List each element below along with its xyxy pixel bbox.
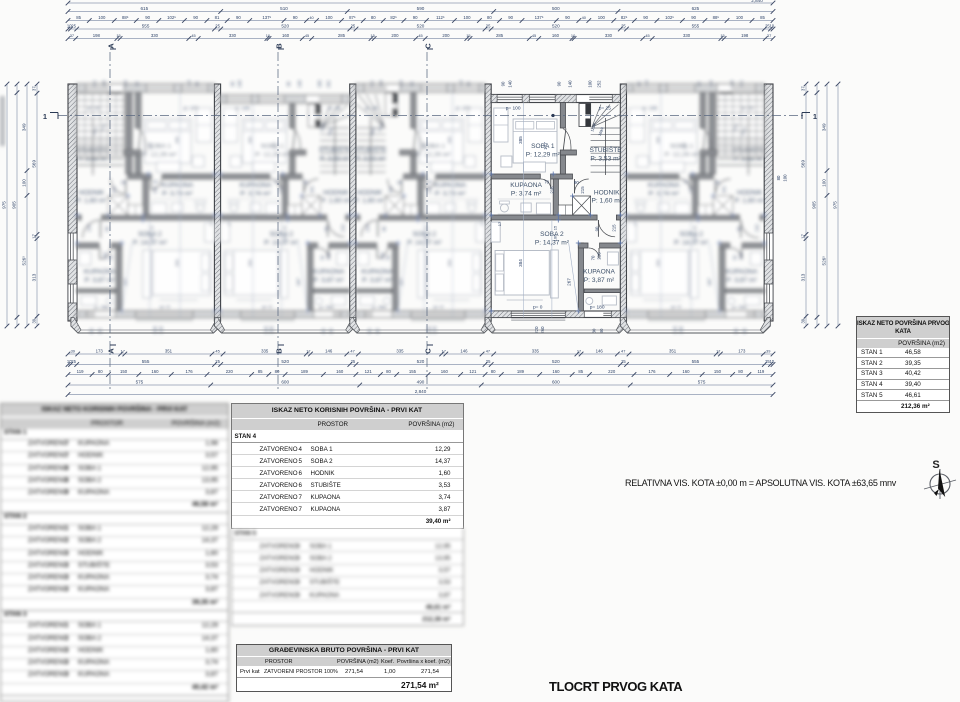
svg-text:349: 349 xyxy=(21,123,26,131)
svg-text:335: 335 xyxy=(532,348,540,353)
svg-text:80: 80 xyxy=(98,369,103,374)
svg-text:220: 220 xyxy=(226,369,234,374)
svg-text:p= 100: p= 100 xyxy=(642,106,657,112)
svg-text:100: 100 xyxy=(102,80,107,88)
svg-text:25: 25 xyxy=(621,23,626,28)
svg-text:STUBIŠTE: STUBIŠTE xyxy=(732,145,765,154)
svg-text:STUBIŠTE: STUBIŠTE xyxy=(319,145,352,154)
svg-text:45: 45 xyxy=(191,33,195,38)
svg-text:P: 12,29 m²: P: 12,29 m² xyxy=(416,152,451,159)
svg-text:85: 85 xyxy=(760,15,765,20)
svg-text:45: 45 xyxy=(532,33,536,38)
svg-text:15: 15 xyxy=(466,33,470,38)
svg-text:90: 90 xyxy=(410,81,415,86)
svg-text:140: 140 xyxy=(508,80,513,88)
svg-text:P: 1,60 m²: P: 1,60 m² xyxy=(321,198,352,205)
svg-text:37: 37 xyxy=(31,86,36,91)
svg-text:351: 351 xyxy=(669,348,677,353)
svg-text:100: 100 xyxy=(21,179,26,187)
svg-text:90: 90 xyxy=(194,81,199,86)
svg-text:p= 180: p= 180 xyxy=(94,305,109,311)
svg-text:215: 215 xyxy=(755,224,760,232)
svg-text:P: 3,87 m²: P: 3,87 m² xyxy=(584,277,615,284)
svg-text:177: 177 xyxy=(543,142,548,150)
svg-text:384: 384 xyxy=(247,259,252,267)
svg-text:80: 80 xyxy=(487,15,492,20)
svg-text:100: 100 xyxy=(98,15,106,20)
svg-text:112⁵: 112⁵ xyxy=(436,15,445,20)
svg-text:HODNIK: HODNIK xyxy=(79,190,105,197)
svg-text:70: 70 xyxy=(427,180,432,185)
svg-text:510: 510 xyxy=(280,6,288,11)
svg-text:15: 15 xyxy=(116,33,120,38)
svg-text:600: 600 xyxy=(281,379,289,384)
svg-text:215: 215 xyxy=(112,186,117,194)
svg-text:575: 575 xyxy=(136,379,144,384)
svg-text:80: 80 xyxy=(776,175,781,180)
svg-text:384: 384 xyxy=(447,259,452,267)
svg-text:216: 216 xyxy=(596,252,601,260)
svg-text:555: 555 xyxy=(692,23,700,28)
svg-text:25: 25 xyxy=(71,359,76,364)
svg-text:100: 100 xyxy=(325,15,333,20)
svg-text:176: 176 xyxy=(186,369,194,374)
svg-text:140: 140 xyxy=(708,80,713,88)
svg-text:90: 90 xyxy=(637,81,642,86)
svg-text:37: 37 xyxy=(800,86,805,91)
svg-text:176: 176 xyxy=(648,369,656,374)
svg-text:100: 100 xyxy=(730,80,735,88)
svg-text:500: 500 xyxy=(552,6,560,11)
svg-text:HODNIK: HODNIK xyxy=(323,190,349,197)
svg-text:p= 25: p= 25 xyxy=(328,106,340,112)
svg-text:10: 10 xyxy=(769,359,774,364)
svg-text:215: 215 xyxy=(87,224,92,232)
svg-text:100: 100 xyxy=(588,80,593,88)
svg-text:267: 267 xyxy=(566,278,571,286)
svg-text:70: 70 xyxy=(109,255,114,260)
svg-text:330: 330 xyxy=(151,33,159,38)
svg-text:100: 100 xyxy=(553,234,558,241)
svg-text:25: 25 xyxy=(621,359,626,364)
svg-text:160: 160 xyxy=(336,369,344,374)
svg-text:137⁵: 137⁵ xyxy=(535,15,544,20)
svg-text:490: 490 xyxy=(417,379,425,384)
svg-text:625: 625 xyxy=(692,6,700,11)
svg-text:17: 17 xyxy=(800,234,805,239)
svg-text:335: 335 xyxy=(261,348,269,353)
svg-text:STUBIŠTE: STUBIŠTE xyxy=(589,145,622,154)
svg-text:70: 70 xyxy=(683,180,688,185)
svg-text:90: 90 xyxy=(397,180,402,185)
svg-text:P: 12,29 m²: P: 12,29 m² xyxy=(255,152,290,159)
svg-text:KUPAONA: KUPAONA xyxy=(583,269,615,276)
svg-text:90: 90 xyxy=(574,180,579,185)
svg-text:90: 90 xyxy=(286,81,291,86)
svg-text:384: 384 xyxy=(655,259,660,267)
svg-text:215: 215 xyxy=(580,186,585,194)
svg-text:39: 39 xyxy=(766,348,770,353)
svg-text:267: 267 xyxy=(399,278,404,286)
svg-text:90: 90 xyxy=(135,81,140,86)
svg-text:90: 90 xyxy=(324,226,329,231)
svg-text:90: 90 xyxy=(193,15,198,20)
svg-text:200: 200 xyxy=(442,33,450,38)
svg-text:P: 1,60 m²: P: 1,60 m² xyxy=(76,198,107,205)
svg-text:1: 1 xyxy=(43,112,47,121)
svg-text:KUPAONA: KUPAONA xyxy=(434,182,466,189)
svg-text:90: 90 xyxy=(557,81,562,86)
svg-text:45: 45 xyxy=(418,33,422,38)
svg-text:100: 100 xyxy=(783,174,788,182)
svg-text:520: 520 xyxy=(552,359,560,364)
svg-text:90: 90 xyxy=(382,226,387,231)
svg-text:p= 25: p= 25 xyxy=(87,106,99,112)
svg-text:85: 85 xyxy=(76,15,81,20)
svg-text:146: 146 xyxy=(460,348,468,353)
svg-text:177: 177 xyxy=(422,142,427,150)
svg-text:P: 12,29 m²: P: 12,29 m² xyxy=(665,152,700,159)
svg-text:173: 173 xyxy=(738,348,746,353)
svg-text:15: 15 xyxy=(553,225,558,230)
svg-text:90: 90 xyxy=(691,15,696,20)
svg-text:177: 177 xyxy=(682,142,687,150)
svg-text:140: 140 xyxy=(297,80,302,88)
svg-text:216: 216 xyxy=(427,186,432,194)
svg-text:17: 17 xyxy=(716,348,720,353)
svg-text:600: 600 xyxy=(552,379,560,384)
svg-text:KUPAONA: KUPAONA xyxy=(84,269,116,276)
svg-text:90: 90 xyxy=(303,180,308,185)
svg-text:520: 520 xyxy=(417,359,425,364)
svg-text:15: 15 xyxy=(370,33,374,38)
svg-text:70: 70 xyxy=(386,255,391,260)
svg-text:87⁵: 87⁵ xyxy=(349,15,356,20)
svg-text:215: 215 xyxy=(388,186,393,194)
svg-text:975: 975 xyxy=(1,201,6,209)
svg-text:45: 45 xyxy=(215,348,219,353)
svg-text:17: 17 xyxy=(306,348,310,353)
svg-text:90: 90 xyxy=(230,81,235,86)
svg-text:p= 0: p= 0 xyxy=(671,305,681,311)
svg-text:160: 160 xyxy=(151,369,159,374)
svg-text:P: 3,74 m²: P: 3,74 m² xyxy=(240,191,271,198)
svg-text:P: 12,29 m²: P: 12,29 m² xyxy=(142,152,177,159)
svg-text:140: 140 xyxy=(237,80,242,88)
svg-text:220: 220 xyxy=(608,369,616,374)
svg-text:216: 216 xyxy=(102,252,107,260)
svg-text:47: 47 xyxy=(350,348,354,353)
svg-text:p= 25: p= 25 xyxy=(599,106,611,112)
svg-text:p= 180: p= 180 xyxy=(732,305,747,311)
svg-text:70: 70 xyxy=(733,255,738,260)
svg-text:520: 520 xyxy=(417,23,425,28)
svg-text:2,840: 2,840 xyxy=(751,0,763,3)
svg-text:385: 385 xyxy=(655,136,660,144)
svg-text:349: 349 xyxy=(821,123,826,131)
svg-text:90: 90 xyxy=(105,226,110,231)
svg-text:39: 39 xyxy=(800,318,805,323)
svg-text:615: 615 xyxy=(140,6,148,11)
svg-text:p= 180: p= 180 xyxy=(590,305,605,311)
svg-text:140: 140 xyxy=(399,80,404,88)
svg-text:47: 47 xyxy=(621,348,625,353)
svg-text:STUBIŠTE: STUBIŠTE xyxy=(77,145,110,154)
svg-text:88⁵: 88⁵ xyxy=(713,15,720,20)
svg-text:102⁵: 102⁵ xyxy=(167,15,176,20)
svg-text:160: 160 xyxy=(441,369,449,374)
svg-text:160: 160 xyxy=(282,33,290,38)
svg-text:100: 100 xyxy=(282,234,287,241)
svg-text:15: 15 xyxy=(149,225,154,230)
svg-text:P: 1,60 m²: P: 1,60 m² xyxy=(734,198,765,205)
svg-text:A: A xyxy=(107,348,116,354)
svg-text:39: 39 xyxy=(71,348,75,353)
svg-text:140: 140 xyxy=(568,80,573,88)
svg-text:100: 100 xyxy=(463,15,471,20)
svg-text:p= 25: p= 25 xyxy=(742,106,754,112)
svg-text:215: 215 xyxy=(341,224,346,232)
svg-text:216: 216 xyxy=(380,252,385,260)
svg-text:B: B xyxy=(275,348,284,354)
svg-text:p= 180: p= 180 xyxy=(319,305,334,311)
svg-text:85: 85 xyxy=(578,369,583,374)
svg-text:25: 25 xyxy=(215,359,220,364)
svg-text:189: 189 xyxy=(301,369,309,374)
svg-text:P: 3,74 m²: P: 3,74 m² xyxy=(435,191,466,198)
svg-text:173: 173 xyxy=(96,348,104,353)
svg-text:330: 330 xyxy=(229,33,237,38)
svg-text:252: 252 xyxy=(739,80,744,88)
svg-text:140: 140 xyxy=(187,80,192,88)
svg-text:100: 100 xyxy=(317,80,322,88)
svg-text:P: 3,87 m²: P: 3,87 m² xyxy=(84,277,115,284)
svg-text:KUPAONA: KUPAONA xyxy=(726,269,758,276)
svg-text:KUPAONA: KUPAONA xyxy=(240,182,272,189)
svg-text:137⁵: 137⁵ xyxy=(262,15,271,20)
svg-text:252: 252 xyxy=(370,80,375,88)
svg-text:90: 90 xyxy=(697,81,702,86)
svg-text:17: 17 xyxy=(31,234,36,239)
svg-text:P: 3,53 m²: P: 3,53 m² xyxy=(77,156,108,163)
svg-text:40: 40 xyxy=(309,15,314,20)
svg-text:P: 1,60 m²: P: 1,60 m² xyxy=(591,198,622,205)
svg-text:215: 215 xyxy=(722,186,727,194)
svg-text:100: 100 xyxy=(692,234,697,241)
svg-text:216: 216 xyxy=(549,186,554,194)
svg-text:252: 252 xyxy=(92,80,97,88)
svg-text:80: 80 xyxy=(275,369,280,374)
svg-text:140: 140 xyxy=(459,80,464,88)
svg-text:140: 140 xyxy=(644,80,649,88)
svg-text:102⁵: 102⁵ xyxy=(665,15,674,20)
svg-text:80: 80 xyxy=(386,369,391,374)
svg-text:P: 1,60 m²: P: 1,60 m² xyxy=(354,198,385,205)
svg-text:526⁵: 526⁵ xyxy=(21,256,26,266)
svg-text:252: 252 xyxy=(597,80,602,88)
svg-text:90: 90 xyxy=(121,180,126,185)
svg-text:216: 216 xyxy=(153,186,158,194)
svg-text:85: 85 xyxy=(258,369,263,374)
svg-text:25: 25 xyxy=(351,359,356,364)
svg-text:267: 267 xyxy=(296,278,301,286)
svg-text:520: 520 xyxy=(281,359,289,364)
svg-text:A: A xyxy=(107,43,116,49)
svg-text:25: 25 xyxy=(351,23,356,28)
svg-text:330: 330 xyxy=(683,33,691,38)
svg-text:215: 215 xyxy=(310,186,315,194)
svg-text:HODNIK: HODNIK xyxy=(737,190,763,197)
svg-text:17: 17 xyxy=(226,221,231,226)
svg-text:17: 17 xyxy=(208,221,213,226)
svg-text:P: 12,29 m²: P: 12,29 m² xyxy=(526,152,561,159)
svg-text:C: C xyxy=(424,348,433,354)
svg-text:100: 100 xyxy=(598,15,606,20)
svg-text:90: 90 xyxy=(565,15,570,20)
svg-text:216: 216 xyxy=(689,186,694,194)
svg-text:KUPAONA: KUPAONA xyxy=(361,269,393,276)
svg-text:119: 119 xyxy=(757,369,764,374)
svg-text:384: 384 xyxy=(175,259,180,267)
svg-text:119: 119 xyxy=(77,369,84,374)
svg-text:KUPAONA: KUPAONA xyxy=(313,269,345,276)
svg-text:520: 520 xyxy=(281,23,289,28)
svg-text:25: 25 xyxy=(71,23,76,28)
svg-text:160: 160 xyxy=(552,33,560,38)
svg-text:HODNIK: HODNIK xyxy=(594,190,620,197)
svg-text:384: 384 xyxy=(518,259,523,267)
svg-text:155: 155 xyxy=(409,369,417,374)
svg-text:17: 17 xyxy=(497,221,502,226)
svg-text:17: 17 xyxy=(633,221,638,226)
svg-text:526⁵: 526⁵ xyxy=(821,256,826,266)
svg-text:25: 25 xyxy=(215,23,220,28)
svg-text:520: 520 xyxy=(552,23,560,28)
svg-text:P: 3,74 m²: P: 3,74 m² xyxy=(648,191,679,198)
svg-text:569: 569 xyxy=(800,160,805,168)
svg-text:905: 905 xyxy=(11,201,16,209)
svg-text:200: 200 xyxy=(391,33,399,38)
svg-text:S: S xyxy=(932,459,939,471)
svg-text:975: 975 xyxy=(832,201,837,209)
svg-text:90: 90 xyxy=(715,180,720,185)
svg-text:HODNIK: HODNIK xyxy=(357,190,383,197)
svg-text:160: 160 xyxy=(682,369,690,374)
svg-text:P: 3,53 m²: P: 3,53 m² xyxy=(320,156,351,163)
svg-text:177: 177 xyxy=(273,142,278,150)
svg-text:146: 146 xyxy=(596,348,604,353)
svg-text:90: 90 xyxy=(595,226,600,231)
svg-text:100: 100 xyxy=(424,234,429,241)
svg-text:216: 216 xyxy=(739,252,744,260)
svg-text:90: 90 xyxy=(236,15,241,20)
svg-text:385: 385 xyxy=(447,136,452,144)
svg-text:267: 267 xyxy=(707,278,712,286)
svg-text:351: 351 xyxy=(165,348,173,353)
svg-text:555: 555 xyxy=(142,359,150,364)
svg-text:555: 555 xyxy=(692,359,700,364)
svg-text:17: 17 xyxy=(121,348,125,353)
svg-text:P: 3,87 m²: P: 3,87 m² xyxy=(362,277,393,284)
svg-text:285: 285 xyxy=(496,33,504,38)
svg-text:KUPAONA: KUPAONA xyxy=(161,182,193,189)
svg-text:90: 90 xyxy=(500,81,505,86)
svg-text:555: 555 xyxy=(142,23,150,28)
svg-text:90: 90 xyxy=(643,15,648,20)
svg-text:189: 189 xyxy=(517,369,525,374)
svg-text:569: 569 xyxy=(31,160,36,168)
svg-text:82⁵: 82⁵ xyxy=(390,15,397,20)
svg-text:216: 216 xyxy=(279,186,284,194)
svg-text:15: 15 xyxy=(692,225,697,230)
svg-text:p= 100: p= 100 xyxy=(184,106,199,112)
svg-text:47: 47 xyxy=(486,348,490,353)
svg-text:313: 313 xyxy=(31,273,36,281)
svg-text:90: 90 xyxy=(145,15,150,20)
svg-text:70: 70 xyxy=(591,255,596,260)
svg-text:100: 100 xyxy=(821,179,826,187)
svg-text:198: 198 xyxy=(93,33,101,38)
svg-text:p= 100: p= 100 xyxy=(235,106,250,112)
svg-text:90: 90 xyxy=(293,15,298,20)
svg-text:121: 121 xyxy=(469,369,477,374)
svg-text:150: 150 xyxy=(714,369,722,374)
svg-text:100: 100 xyxy=(736,15,744,20)
svg-text:198: 198 xyxy=(741,33,749,38)
svg-text:590: 590 xyxy=(417,6,425,11)
svg-text:p= 0: p= 0 xyxy=(160,305,170,311)
svg-text:KUPAONA: KUPAONA xyxy=(510,182,542,189)
svg-text:90: 90 xyxy=(737,226,742,231)
svg-text:1: 1 xyxy=(813,112,817,121)
svg-text:P: 3,74 m²: P: 3,74 m² xyxy=(511,191,542,198)
svg-text:17: 17 xyxy=(442,348,446,353)
svg-text:p= 180: p= 180 xyxy=(372,305,387,311)
svg-text:285: 285 xyxy=(338,33,346,38)
svg-text:p= 100: p= 100 xyxy=(456,106,471,112)
svg-text:100: 100 xyxy=(149,234,154,241)
svg-text:P: 3,87 m²: P: 3,87 m² xyxy=(313,277,344,284)
svg-text:P: 3,53 m²: P: 3,53 m² xyxy=(355,156,386,163)
svg-text:385: 385 xyxy=(247,136,252,144)
svg-text:25: 25 xyxy=(486,359,491,364)
svg-text:82⁵: 82⁵ xyxy=(621,15,628,20)
svg-text:88⁵: 88⁵ xyxy=(122,15,129,20)
svg-text:90: 90 xyxy=(413,15,418,20)
svg-text:p= 0: p= 0 xyxy=(434,305,444,311)
svg-text:25: 25 xyxy=(486,23,491,28)
svg-text:P: 3,87 m²: P: 3,87 m² xyxy=(726,277,757,284)
svg-text:P: 3,53 m²: P: 3,53 m² xyxy=(733,156,764,163)
svg-text:45: 45 xyxy=(645,33,649,38)
svg-text:15: 15 xyxy=(720,33,724,38)
svg-text:80: 80 xyxy=(738,369,743,374)
svg-text:90: 90 xyxy=(508,15,513,20)
svg-text:15: 15 xyxy=(282,225,287,230)
svg-text:p= 100: p= 100 xyxy=(506,106,521,112)
svg-text:252: 252 xyxy=(326,80,331,88)
svg-text:C: C xyxy=(424,43,433,49)
svg-text:KUPAONA: KUPAONA xyxy=(648,182,680,189)
svg-text:70: 70 xyxy=(153,180,158,185)
svg-text:80: 80 xyxy=(491,369,496,374)
svg-text:17: 17 xyxy=(479,221,484,226)
svg-text:905: 905 xyxy=(811,201,816,209)
svg-text:2,840: 2,840 xyxy=(415,389,427,394)
svg-text:575: 575 xyxy=(698,379,706,384)
svg-text:37: 37 xyxy=(767,33,771,38)
svg-text:STUBIŠTE: STUBIŠTE xyxy=(354,145,387,154)
